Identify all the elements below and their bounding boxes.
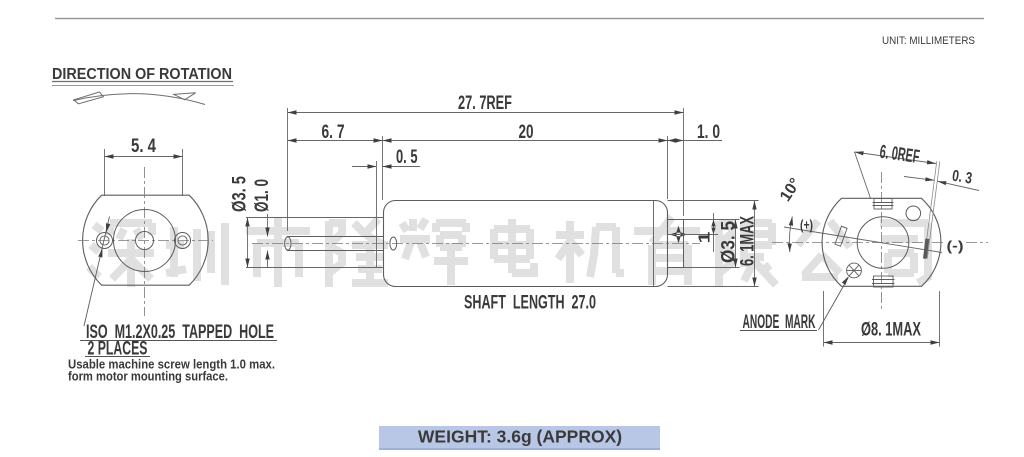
svg-text:5. 4: 5. 4 <box>131 136 156 157</box>
svg-text:Ø1. 0: Ø1. 0 <box>252 179 273 212</box>
svg-text:10°: 10° <box>777 175 804 204</box>
svg-text:SHAFT LENGTH 27.0: SHAFT LENGTH 27.0 <box>464 293 596 314</box>
svg-text:(+): (+) <box>800 217 813 233</box>
svg-text:Ø3. 5: Ø3. 5 <box>230 176 251 212</box>
svg-text:1: 1 <box>697 231 714 243</box>
svg-text:6. 1MAX: 6. 1MAX <box>738 216 759 266</box>
svg-text:Ø3. 5: Ø3. 5 <box>719 221 740 263</box>
svg-text:ANODE MARK: ANODE MARK <box>743 312 816 333</box>
svg-text:6. 0REF: 6. 0REF <box>878 142 921 168</box>
svg-text:UNIT: MILLIMETERS: UNIT: MILLIMETERS <box>882 35 975 47</box>
svg-text:WEIGHT: 3.6g (APPROX): WEIGHT: 3.6g (APPROX) <box>418 427 622 447</box>
svg-text:DIRECTION OF ROTATION: DIRECTION OF ROTATION <box>52 66 232 83</box>
svg-text:0. 5: 0. 5 <box>396 147 418 168</box>
svg-text:6. 7: 6. 7 <box>322 122 345 143</box>
svg-text:0. 3: 0. 3 <box>951 168 973 188</box>
svg-text:20: 20 <box>519 122 534 143</box>
svg-text:1. 0: 1. 0 <box>697 122 720 143</box>
svg-text:Ø8. 1MAX: Ø8. 1MAX <box>861 320 921 341</box>
svg-text:27. 7REF: 27. 7REF <box>458 93 512 114</box>
svg-text:(-): (-) <box>947 238 964 254</box>
svg-text:form motor mounting surface.: form motor mounting surface. <box>68 369 228 384</box>
